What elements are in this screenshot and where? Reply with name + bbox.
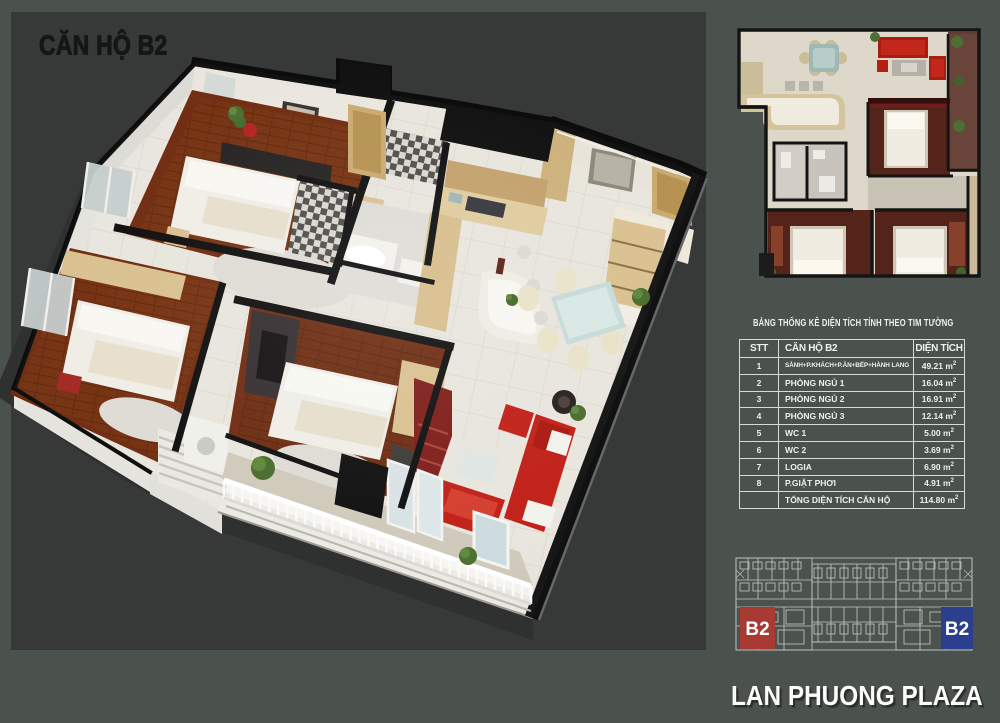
svg-text:B2: B2 [945,619,969,640]
svg-text:B2: B2 [745,619,769,640]
